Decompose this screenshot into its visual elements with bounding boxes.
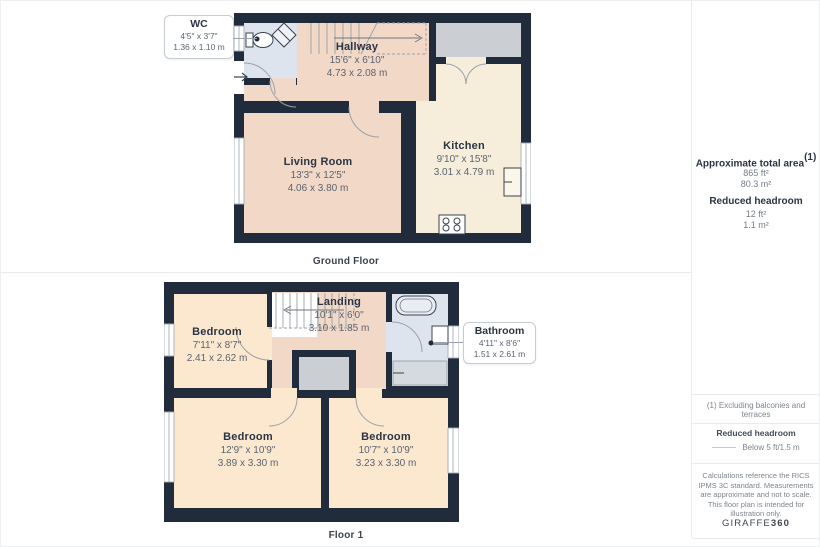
room-dims-m: 2.41 x 2.62 m (187, 352, 248, 365)
room-name: WC (167, 18, 231, 31)
room-dims-m: 3.89 x 3.30 m (218, 457, 279, 470)
room-dims-ft: 9'10" x 15'8" (434, 153, 495, 166)
total-area-m: 80.3 m² (692, 179, 820, 189)
room-dims-m: 4.06 x 3.80 m (284, 182, 353, 195)
legend-label: Below 5 ft/1.5 m (742, 443, 799, 452)
total-area-superscript: (1) (804, 152, 816, 163)
room-name: Bedroom (356, 431, 417, 444)
disclaimer: Calculations reference the RICS IPMS 3C … (698, 471, 814, 519)
basin-icon (272, 23, 296, 47)
room-dims-ft: 4'11" x 8'6" (466, 338, 533, 349)
room-label-hallway: Hallway 15'6" x 6'10" 4.73 x 2.08 m (327, 41, 388, 80)
room-dims-ft: 10'1" x 6'0" (309, 309, 370, 322)
reduced-headroom-m: 1.1 m² (692, 220, 820, 230)
sidebar-section-divider (692, 394, 820, 395)
toilet-icon (246, 33, 273, 48)
room-name: Bathroom (466, 325, 533, 338)
room-name: Hallway (327, 41, 388, 54)
room-dims-m: 4.73 x 2.08 m (327, 67, 388, 80)
wc-leader-line (233, 38, 257, 39)
reduced-headroom-ft: 12 ft² (692, 209, 820, 219)
room-name: Kitchen (434, 140, 495, 153)
room-label-bedroom-left: Bedroom 12'9" x 10'9" 3.89 x 3.30 m (218, 431, 279, 470)
wc-label-box: WC 4'5" x 3'7" 1.36 x 1.10 m (164, 15, 234, 59)
room-label-kitchen: Kitchen 9'10" x 15'8" 3.01 x 4.79 m (434, 140, 495, 179)
bathroom-label-box: Bathroom 4'11" x 8'6" 1.51 x 2.61 m (463, 322, 536, 364)
room-dims-m: 3.10 x 1.85 m (309, 322, 370, 335)
total-area-ft: 865 ft² (692, 168, 820, 178)
brand-suffix: 360 (771, 518, 790, 529)
room-dims-ft: 7'11" x 8'7" (187, 339, 248, 352)
bathroom-leader-line (433, 342, 463, 343)
sidebar-section-divider (692, 423, 820, 424)
floorplan-page: WC 4'5" x 3'7" 1.36 x 1.10 m Hallway 15'… (0, 0, 820, 547)
counter-icon (504, 168, 521, 196)
bathtub-icon (396, 296, 436, 315)
ground-floor-caption: Ground Floor (1, 256, 691, 267)
room-label-bedroom-right: Bedroom 10'7" x 10'9" 3.23 x 3.30 m (356, 431, 417, 470)
room-name: Bedroom (218, 431, 279, 444)
room-name: Landing (309, 296, 370, 309)
shower-icon (393, 361, 447, 385)
room-dims-m: 3.01 x 4.79 m (434, 166, 495, 179)
room-dims-ft: 10'7" x 10'9" (356, 444, 417, 457)
room-label-bedroom-top: Bedroom 7'11" x 8'7" 2.41 x 2.62 m (187, 326, 248, 365)
sidebar-divider (691, 1, 692, 538)
room-dims-m: 1.36 x 1.10 m (167, 42, 231, 53)
room-dims-ft: 12'9" x 10'9" (218, 444, 279, 457)
room-dims-m: 1.51 x 2.61 m (466, 349, 533, 360)
footnote: (1) Excluding balconies and terraces (692, 401, 820, 419)
room-dims-m: 3.23 x 3.30 m (356, 457, 417, 470)
room-label-living: Living Room 13'3" x 12'5" 4.06 x 3.80 m (284, 156, 353, 195)
room-dims-ft: 15'6" x 6'10" (327, 54, 388, 67)
room-dims-ft: 13'3" x 12'5" (284, 169, 353, 182)
sidebar-bottom-border (692, 538, 820, 539)
room-name: Bedroom (187, 326, 248, 339)
room-dims-ft: 4'5" x 3'7" (167, 31, 231, 42)
room-label-landing: Landing 10'1" x 6'0" 3.10 x 1.85 m (309, 296, 370, 335)
sidebar-section-divider (692, 463, 820, 464)
legend-line-swatch (712, 447, 736, 448)
legend-row: Below 5 ft/1.5 m (692, 443, 820, 452)
legend-heading: Reduced headroom (692, 428, 820, 438)
floor1-caption: Floor 1 (1, 530, 691, 541)
stove-icon (439, 215, 465, 234)
room-name: Living Room (284, 156, 353, 169)
reduced-headroom-heading: Reduced headroom (692, 196, 820, 207)
brand-name: GIRAFFE (722, 518, 771, 529)
giraffe360-logo: GIRAFFE360 (692, 518, 820, 529)
panel-divider (1, 272, 691, 273)
